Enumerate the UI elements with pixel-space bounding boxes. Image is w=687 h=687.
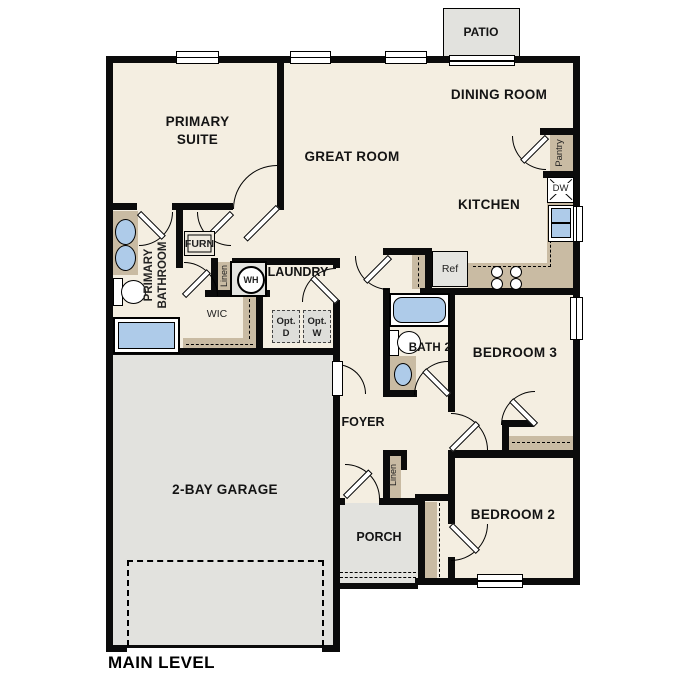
wall-bed2-south-a [415, 578, 479, 585]
window-bedroom2 [477, 574, 523, 588]
wall-hall-east-b [448, 450, 455, 524]
wall-ps-south-b [172, 203, 233, 210]
porch-step-2 [340, 577, 416, 578]
opt-dryer-box: Opt. D [272, 310, 300, 343]
room-label-laundry: LAUNDRY [264, 265, 332, 279]
wall-bed2-south-b [519, 578, 580, 585]
refrigerator: Ref [432, 251, 468, 287]
room-label-primary-bathroom: PRIMARY BATHROOM [142, 240, 172, 310]
wall-furn-west [176, 210, 183, 268]
bed2-closet-shelf [424, 502, 437, 578]
burner-2 [510, 266, 522, 278]
room-label-foyer: FOYER [338, 415, 388, 429]
feature-label-linen2: Linen [388, 455, 400, 495]
room-label-bath2: BATH 2 [408, 341, 452, 356]
patio-slider-door [449, 55, 515, 66]
wall-ps-east [277, 56, 284, 210]
wall-greatroom-south [383, 248, 432, 255]
wic-rod-side [249, 299, 250, 339]
wall-laundry-east-a [333, 258, 340, 268]
burner-1 [491, 266, 503, 278]
kitchen-counter-dash-v [550, 240, 551, 267]
kitchen-sink-basin-1 [551, 208, 571, 223]
vanity-sink-2 [115, 245, 136, 271]
window-greatroom-1 [290, 51, 331, 64]
garage-door-swing [127, 560, 324, 646]
wall-porch-east [418, 501, 425, 583]
wall-laundry-east-b [333, 300, 340, 355]
room-label-garage: 2-BAY GARAGE [165, 481, 285, 499]
window-bedroom3 [570, 297, 583, 340]
water-heater-circle: WH [237, 266, 265, 294]
furnace-unit: FURN [184, 231, 215, 256]
feature-label-pantry: Pantry [554, 133, 568, 173]
opt-dryer-label: Opt. D [277, 316, 296, 339]
wall-garage-east-b [333, 394, 340, 652]
room-label-kitchen: KITCHEN [429, 196, 549, 214]
hall-closet-rod [418, 257, 419, 287]
window-primary-suite [176, 51, 219, 64]
wic-rod [186, 344, 253, 345]
bed3-closet-shelf [509, 436, 573, 450]
room-label-bedroom2: BEDROOM 2 [458, 506, 568, 524]
feature-label-linen1: Linen [219, 256, 231, 296]
wall-garage-south-b [322, 645, 340, 652]
wall-porch-front [338, 583, 418, 589]
wall-hall-closet-top [415, 494, 455, 501]
room-label-bedroom3: BEDROOM 3 [460, 344, 570, 362]
tub2 [393, 297, 446, 323]
plan-title: MAIN LEVEL [108, 653, 308, 673]
room-label-primary-suite: PRIMARY SUITE [150, 113, 245, 149]
wall-garage-east-a [333, 348, 340, 361]
room-label-porch: PORCH [348, 530, 410, 544]
porch-step-1 [340, 572, 416, 573]
door-garage-entry-leaf [332, 361, 343, 396]
wall-bed2-bed3 [448, 450, 577, 458]
wall-linen2-east [401, 450, 407, 470]
tub1 [118, 322, 175, 349]
opt-washer-box: Opt. W [303, 310, 331, 343]
vanity-sink-1 [115, 219, 136, 245]
opt-washer-label: Opt. W [308, 316, 327, 339]
wall-front-a [338, 498, 345, 505]
floor-plan: FURN WH Ref DW Opt. D Opt. W PRIMARY SUI… [0, 0, 687, 687]
bath2-sink [394, 363, 412, 386]
bed3-rod [512, 442, 570, 443]
refrigerator-label: Ref [442, 263, 458, 275]
wall-garage-south-a [106, 645, 127, 652]
wall-wic-east [256, 290, 263, 355]
furnace-label: FURN [185, 238, 214, 250]
wall-bath2-south [383, 390, 417, 397]
window-greatroom-2 [385, 51, 427, 64]
bed2-rod [439, 503, 440, 577]
room-label-dining-room: DINING ROOM [439, 86, 559, 104]
burner-4 [510, 278, 522, 290]
wall-ps-south-a [108, 203, 137, 210]
water-heater-label: WH [244, 275, 259, 285]
kitchen-sink-basin-2 [551, 223, 571, 238]
room-label-patio: PATIO [448, 25, 514, 39]
dishwasher-label: DW [549, 183, 572, 194]
room-label-wic: WIC [196, 308, 238, 320]
dishwasher: DW [547, 177, 574, 203]
room-label-great-room: GREAT ROOM [292, 148, 412, 166]
burner-3 [491, 278, 503, 290]
